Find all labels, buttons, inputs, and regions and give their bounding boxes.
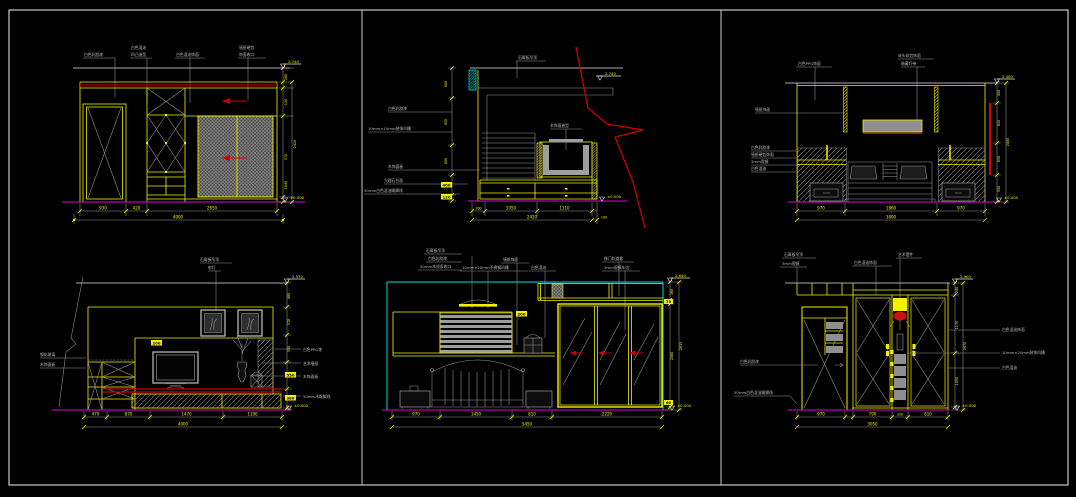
dimension-row: 260 1050 1110 2420 100 xyxy=(470,202,607,224)
dim-label: 970 xyxy=(817,206,825,211)
svg-text:50mm白色混油踢脚线: 50mm白色混油踢脚线 xyxy=(734,390,773,395)
base-platform-hatched xyxy=(132,394,281,408)
dim-label: 1110 xyxy=(559,206,570,211)
svg-text:墙纸硬包饰面: 墙纸硬包饰面 xyxy=(751,152,774,157)
dim-label: 570 xyxy=(287,319,291,325)
svg-text:木饰面板: 木饰面板 xyxy=(388,164,403,169)
sliding-doors-hatched xyxy=(185,98,277,197)
low-cabinet xyxy=(480,180,597,199)
dim-label: 400 xyxy=(997,90,1001,96)
material-label: 墙纸饰面 xyxy=(755,107,770,112)
dim-label: 420 xyxy=(133,206,141,211)
panel-bed-wall-elevation: 白色PPG饰面 床头软包饰面 暗藏灯带 墙纸饰面 白色乳胶漆 墙纸硬包饰面 3m… xyxy=(751,53,1019,222)
svg-text:墙纸饰面: 墙纸饰面 xyxy=(503,257,518,262)
dim-label: 570 xyxy=(284,154,288,160)
material-label: 白色混油 xyxy=(131,45,146,50)
panel-tv-cabinet-section: 石膏板吊顶 白色乳胶漆 10mm×10mm装饰凹槽 木饰面板 大理石台面 50m… xyxy=(364,47,645,228)
dim-total-label: 4000 xyxy=(173,215,184,220)
headboard-panel xyxy=(863,120,922,134)
dimension-chain-right: 280 120 570 1640 2420 2.740 ±0.000 xyxy=(279,59,305,204)
picture-frame xyxy=(238,310,262,336)
dim-label: 650 xyxy=(997,156,1001,162)
svg-text:射灯: 射灯 xyxy=(208,265,216,270)
dim-label: 2220 xyxy=(602,412,613,417)
level-value: ±0.000 xyxy=(294,403,309,408)
door xyxy=(83,104,126,202)
dimension-row: 970 1450 810 2220 5450 xyxy=(390,411,664,429)
svg-text:石膏板吊顶: 石膏板吊顶 xyxy=(426,248,445,253)
dim-label: 1190 xyxy=(247,412,258,417)
dim-label: 970 xyxy=(817,412,825,417)
dim-label: 1470 xyxy=(181,412,192,417)
material-label: 石膏板吊顶 xyxy=(518,55,537,60)
material-label: 凹凸造型 xyxy=(131,52,146,57)
dim-label: 970 xyxy=(412,412,420,417)
nightstand xyxy=(526,391,552,409)
dim-label: 950 xyxy=(444,119,448,125)
dim-label: 120 xyxy=(284,99,288,105)
dim-label: 930 xyxy=(99,206,107,211)
level-value: ±0.000 xyxy=(607,194,622,199)
annotation-labels-top: 石膏板吊顶 射灯 xyxy=(200,257,232,311)
svg-text:50mm木线条收口: 50mm木线条收口 xyxy=(420,264,451,269)
svg-text:移门轨道盒: 移门轨道盒 xyxy=(604,256,623,261)
door-slide-arrows xyxy=(570,351,643,356)
side-cabinet xyxy=(88,360,135,410)
dimension-row: 970 790 320 810 3050 xyxy=(795,411,950,429)
dim-total-label: 2635 xyxy=(679,342,683,350)
annotation-labels-left: 白色乳胶漆 50mm白色混油踢脚线 xyxy=(734,359,818,404)
television xyxy=(153,352,198,389)
headboard-pilaster xyxy=(935,87,939,132)
dim-total-label: 3050 xyxy=(867,422,878,427)
svg-text:50mm白色混油踢脚线: 50mm白色混油踢脚线 xyxy=(364,188,403,193)
annotation-labels-left: 白色乳胶漆 墙纸硬包饰面 3mm银镜 白色混油 xyxy=(751,145,796,172)
svg-text:3mm银镜: 3mm银镜 xyxy=(751,159,769,164)
dim-label: 480 xyxy=(287,293,291,299)
bed xyxy=(430,360,525,407)
dim-label: 2650 xyxy=(207,206,218,211)
dim-label-highlight: 75 xyxy=(666,299,672,304)
dim-total-label: 5450 xyxy=(522,422,533,427)
level-value: 2.570 xyxy=(292,274,303,279)
svg-text:石膏板吊顶: 石膏板吊顶 xyxy=(200,257,219,262)
display-niche xyxy=(890,298,910,402)
dim-tag-value: 200 xyxy=(153,340,161,345)
accent-band xyxy=(103,389,281,392)
dim-label: 470 xyxy=(92,412,100,417)
svg-text:白色混油饰面: 白色混油饰面 xyxy=(1002,327,1025,332)
dim-label: 360 xyxy=(670,289,674,295)
dim-total-label: 3800 xyxy=(886,215,897,220)
dim-total-label: 2420 xyxy=(293,140,297,148)
svg-text:石膏板吊顶: 石膏板吊顶 xyxy=(784,252,803,257)
ceiling-cornice xyxy=(797,284,948,296)
material-label: 木饰面造型 xyxy=(550,123,569,128)
dim-total-label: 2670 xyxy=(963,342,967,350)
ceiling-cornice xyxy=(538,283,663,301)
material-label: 饰面收口 xyxy=(239,52,254,57)
svg-text:白色PPG饰面: 白色PPG饰面 xyxy=(798,61,821,66)
svg-text:10mm×10mm装饰凹槽: 10mm×10mm装饰凹槽 xyxy=(368,126,411,131)
dimension-chain-right: 400 810 650 550 2400 2.400 ±0.000 xyxy=(993,74,1019,204)
dim-total-label: 4000 xyxy=(178,422,189,427)
material-label: 白色乳胶漆 xyxy=(84,52,103,57)
dim-label: 810 xyxy=(528,412,536,417)
dim-label: 1640 xyxy=(284,181,288,189)
dim-label: 2080 xyxy=(670,352,674,360)
bed xyxy=(845,162,935,202)
dim-label: 280 xyxy=(284,74,288,80)
svg-text:50mm木踢脚线: 50mm木踢脚线 xyxy=(303,394,331,399)
headboard-pilaster xyxy=(844,87,848,132)
svg-text:木饰面板: 木饰面板 xyxy=(40,362,55,367)
slide-arrow-icon xyxy=(222,98,230,104)
level-value: 2.400 xyxy=(1002,74,1013,79)
svg-text:白色乳胶漆: 白色乳胶漆 xyxy=(740,359,759,364)
cad-drawing-canvas[interactable]: 白色乳胶漆 白色混油 凹凸造型 白色混油饰面 墙纸硬包 饰面收口 930 xyxy=(0,0,1076,497)
dimension-chain-right: 240 1170 1090 2670 2.900 ±0.000 xyxy=(951,274,977,412)
svg-text:木饰面板: 木饰面板 xyxy=(303,374,318,379)
svg-text:白色混油饰面: 白色混油饰面 xyxy=(854,260,877,265)
hatched-post xyxy=(592,143,597,199)
svg-text:暗藏灯带: 暗藏灯带 xyxy=(901,61,916,66)
svg-text:3mm银镜: 3mm银镜 xyxy=(782,261,800,266)
svg-text:艺术摆件: 艺术摆件 xyxy=(898,252,913,257)
curtain-box-section xyxy=(469,70,476,90)
svg-text:床头软包饰面: 床头软包饰面 xyxy=(898,53,921,58)
nightstand xyxy=(942,183,975,201)
nightstand xyxy=(400,386,430,409)
level-value: ±0.000 xyxy=(677,403,692,408)
dim-total-label: 2400 xyxy=(1006,138,1010,146)
svg-text:艺术墙纸: 艺术墙纸 xyxy=(303,361,318,366)
wall-panel-hatched xyxy=(258,340,273,387)
panel-closet-niche-elevation: 石膏板吊顶 3mm银镜 白色混油饰面 艺术摆件 xyxy=(734,252,1045,429)
dimension-row: 470 870 1470 1190 4000 xyxy=(82,411,284,429)
svg-text:大理石台面: 大理石台面 xyxy=(384,178,403,183)
panel-bed-wardrobe-elevation: 石膏板吊顶 白色乳胶漆 50mm木线条收口 墙纸饰面 10mm×20mm不锈钢凹… xyxy=(382,248,692,429)
picture-frame xyxy=(201,310,225,336)
level-value: 2.900 xyxy=(960,274,971,279)
dim-label: 550 xyxy=(287,346,291,352)
dim-label: 260 xyxy=(475,207,481,211)
svg-text:钢化玻璃: 钢化玻璃 xyxy=(40,352,55,357)
nightstand xyxy=(810,183,843,201)
level-value: 2.740 xyxy=(288,59,299,64)
dim-total-label: 2420 xyxy=(527,215,538,220)
sliding-wardrobe xyxy=(558,304,662,407)
dim-label-highlight: 380 xyxy=(287,396,295,401)
dim-label: 810 xyxy=(924,412,932,417)
dim-label: 240 xyxy=(955,287,959,293)
svg-text:白色乳胶漆: 白色乳胶漆 xyxy=(428,256,447,261)
hatched-post xyxy=(537,143,542,178)
dim-label: 1450 xyxy=(471,412,482,417)
dim-label: 1170 xyxy=(955,321,959,329)
panel-tv-wall-elevation: 石膏板吊顶 射灯 钢化玻璃 木饰面板 200 xyxy=(40,257,331,429)
svg-text:白色乳胶漆: 白色乳胶漆 xyxy=(388,106,407,111)
svg-text:白色混油: 白色混油 xyxy=(751,166,766,171)
cad-viewport: 白色乳胶漆 白色混油 凹凸造型 白色混油饰面 墙纸硬包 饰面收口 930 xyxy=(0,0,1076,497)
svg-text:白色PPG漆: 白色PPG漆 xyxy=(303,347,322,352)
panel-wardrobe-door-elevation: 白色乳胶漆 白色混油 凹凸造型 白色混油饰面 墙纸硬包 饰面收口 930 xyxy=(62,45,305,224)
dimension-row: 930 420 2650 4000 xyxy=(72,203,285,224)
annotation-labels-left: 白色乳胶漆 10mm×10mm装饰凹槽 木饰面板 大理石台面 50mm白色混油踢… xyxy=(364,106,480,194)
dim-label-highlight: 400 xyxy=(443,183,451,188)
level-value: ±0.000 xyxy=(290,195,305,200)
flower-decor xyxy=(894,312,907,321)
vase-plant xyxy=(233,336,251,382)
dim-label: 600 xyxy=(444,158,448,164)
annotation-labels-right: 白色混油饰面 10mm×20mm装饰凹槽 白色混油 xyxy=(908,327,1045,370)
level-flag-icon xyxy=(600,197,605,201)
level-flag-icon xyxy=(598,76,603,80)
dim-label: 1860 xyxy=(886,206,897,211)
svg-text:白色混油: 白色混油 xyxy=(1002,365,1017,370)
dim-tag-value: 200 xyxy=(518,311,526,316)
dim-label: 550 xyxy=(997,186,1001,192)
svg-text:3mm银镜车边: 3mm银镜车边 xyxy=(604,265,629,270)
dim-label: 870 xyxy=(125,412,133,417)
dim-label: 1090 xyxy=(955,377,959,385)
dimension-row: 970 1860 970 3800 xyxy=(795,203,987,222)
dimension-chain-left: 600 950 600 400 120 xyxy=(441,66,456,203)
dim-label-highlight: 550 xyxy=(287,373,295,378)
dim-label-highlight: 60 xyxy=(666,400,672,405)
dimension-chain-right: 480 570 550 550 380 2.570 ±0.000 xyxy=(283,274,309,410)
basket xyxy=(524,335,542,354)
dim-label: 1050 xyxy=(506,206,517,211)
annotation-labels-top: 白色PPG饰面 床头软包饰面 暗藏灯带 xyxy=(796,53,934,120)
louver-steps xyxy=(482,133,535,180)
dim-label: 970 xyxy=(957,206,965,211)
svg-text:白色混油: 白色混油 xyxy=(531,265,546,270)
material-label: 墙纸硬包 xyxy=(239,45,254,50)
dim-label: 100 xyxy=(601,216,607,220)
dim-label-highlight: 120 xyxy=(443,195,451,200)
dimension-chain-right: 360 75 2080 60 2635 2.640 ±0.000 xyxy=(664,273,692,412)
level-value: 2.640 xyxy=(675,273,686,278)
tv-section: 木饰面造型 xyxy=(540,123,592,177)
dim-label: 810 xyxy=(997,120,1001,126)
dim-label: 600 xyxy=(444,81,448,87)
svg-text:10mm×20mm不锈钢凹槽: 10mm×20mm不锈钢凹槽 xyxy=(462,265,509,270)
dim-label: 790 xyxy=(869,412,877,417)
annotation-labels-left: 钢化玻璃 木饰面板 xyxy=(40,352,86,368)
svg-text:白色乳胶漆: 白色乳胶漆 xyxy=(751,145,770,150)
material-label: 白色混油饰面 xyxy=(176,52,199,57)
level-value: ±0.000 xyxy=(962,403,977,408)
dim-label: 320 xyxy=(897,413,903,417)
break-line xyxy=(59,277,83,407)
svg-text:10mm×20mm装饰凹槽: 10mm×20mm装饰凹槽 xyxy=(1002,350,1045,355)
sheet-frame xyxy=(9,10,1068,485)
level-value: ±0.000 xyxy=(1004,195,1019,200)
tall-door-with-shelves xyxy=(802,307,847,410)
level-value: 2.740 xyxy=(605,71,616,76)
